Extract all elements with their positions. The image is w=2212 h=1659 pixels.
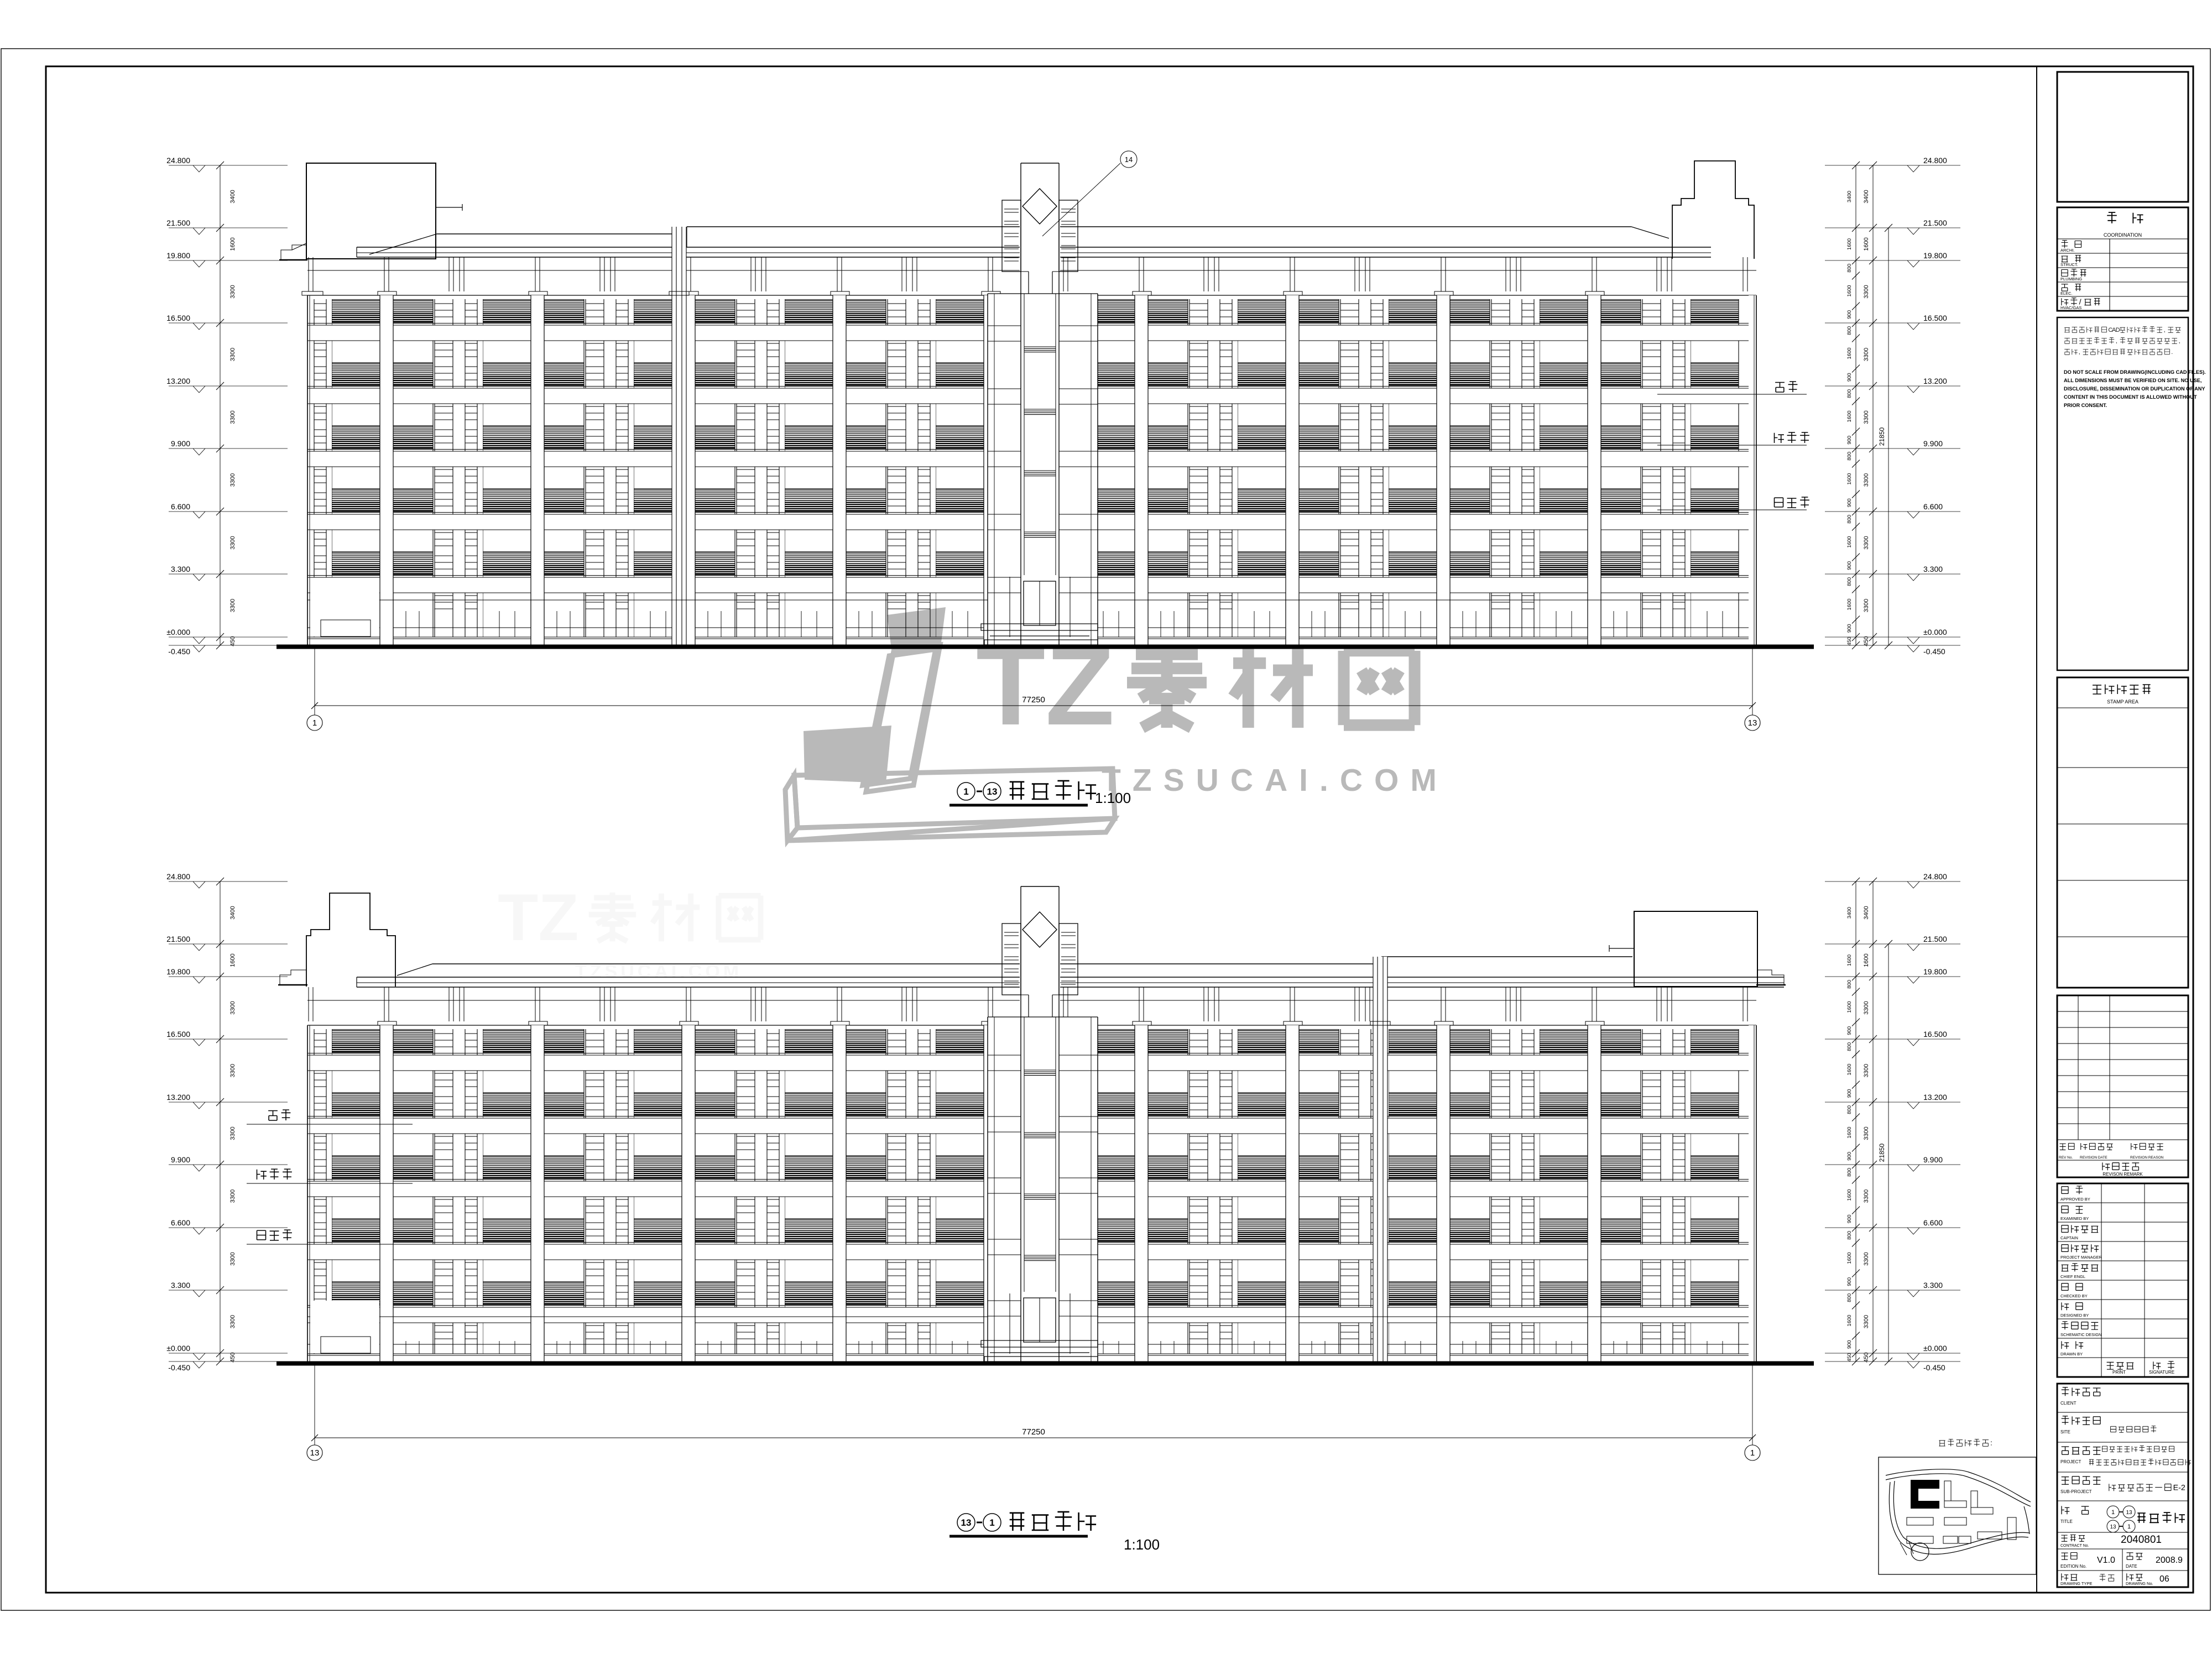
svg-text:24.800: 24.800: [166, 156, 190, 165]
svg-text:1600: 1600: [1846, 347, 1853, 359]
svg-text:±0.000: ±0.000: [1923, 628, 1947, 637]
svg-text:900: 900: [1846, 1214, 1853, 1223]
svg-text:3300: 3300: [229, 410, 236, 424]
svg-text:450: 450: [1846, 1353, 1853, 1362]
svg-text:3400: 3400: [1863, 906, 1870, 919]
svg-text:19.800: 19.800: [1923, 967, 1947, 976]
svg-text:900: 900: [1846, 1152, 1853, 1161]
svg-text:1600: 1600: [1846, 1189, 1853, 1201]
svg-text:1: 1: [989, 1517, 994, 1528]
svg-text:V1.0: V1.0: [2097, 1556, 2115, 1565]
svg-text:ELEC.: ELEC.: [2060, 291, 2073, 296]
svg-text:DRAWING TYPE: DRAWING TYPE: [2060, 1581, 2093, 1586]
svg-text:1600: 1600: [1846, 473, 1853, 484]
svg-text:21850: 21850: [1878, 427, 1886, 446]
svg-text:3300: 3300: [229, 599, 236, 612]
svg-text:PROJECT MANAGER: PROJECT MANAGER: [2060, 1255, 2102, 1260]
svg-text:3300: 3300: [1863, 473, 1870, 487]
svg-text:77250: 77250: [1022, 695, 1045, 705]
svg-text:9.900: 9.900: [1923, 439, 1943, 448]
svg-text:1600: 1600: [1846, 238, 1853, 250]
svg-text:1: 1: [2111, 1509, 2115, 1516]
svg-text:3300: 3300: [229, 1001, 236, 1014]
svg-text:800: 800: [1846, 1231, 1853, 1240]
svg-text:3400: 3400: [229, 906, 236, 919]
svg-text:1600: 1600: [1846, 1063, 1853, 1075]
svg-text:,: ,: [2164, 327, 2166, 333]
svg-text:PLUMBING: PLUMBING: [2060, 276, 2082, 281]
svg-text:16.500: 16.500: [1923, 1030, 1947, 1039]
svg-text:1: 1: [1750, 1448, 1755, 1458]
svg-text:450: 450: [1863, 1352, 1870, 1362]
svg-text:TITLE: TITLE: [2060, 1519, 2073, 1524]
svg-text:19.800: 19.800: [1923, 251, 1947, 260]
svg-text:900: 900: [1846, 1026, 1853, 1035]
svg-text:800: 800: [1846, 452, 1853, 461]
svg-text:1600: 1600: [1846, 536, 1853, 547]
svg-text:3400: 3400: [1846, 191, 1853, 202]
svg-text:DATE: DATE: [2126, 1564, 2137, 1569]
svg-text:APPROVED BY: APPROVED BY: [2060, 1197, 2090, 1202]
svg-text:450: 450: [229, 636, 236, 646]
svg-text:2040801: 2040801: [2121, 1534, 2162, 1546]
svg-text:CLIENT: CLIENT: [2060, 1401, 2077, 1406]
svg-text:6.600: 6.600: [1923, 502, 1943, 511]
svg-text:,: ,: [2179, 338, 2180, 345]
svg-text:21.500: 21.500: [166, 935, 190, 943]
svg-text:-0.450: -0.450: [1923, 1363, 1945, 1372]
svg-text:21.500: 21.500: [166, 218, 190, 227]
svg-text:,: ,: [2116, 338, 2117, 345]
svg-text:CONTRACT No.: CONTRACT No.: [2060, 1544, 2089, 1548]
svg-text:PRINT: PRINT: [2112, 1370, 2126, 1375]
svg-text:PROJECT: PROJECT: [2060, 1459, 2081, 1464]
svg-text:800: 800: [1846, 1168, 1853, 1177]
svg-text:21850: 21850: [1878, 1143, 1886, 1162]
svg-text:±0.000: ±0.000: [166, 628, 190, 637]
svg-text:13: 13: [310, 1448, 320, 1458]
svg-text:D: D: [2116, 327, 2120, 333]
svg-text:16.500: 16.500: [1923, 314, 1947, 322]
svg-text:13: 13: [961, 1517, 972, 1528]
svg-text:1: 1: [963, 786, 968, 797]
svg-text:CHECKED BY: CHECKED BY: [2060, 1293, 2088, 1298]
svg-text:DRAWING No.: DRAWING No.: [2126, 1581, 2153, 1586]
svg-text:TZ: TZ: [498, 880, 579, 954]
svg-text:3300: 3300: [1863, 599, 1870, 612]
svg-text:900: 900: [1846, 1340, 1853, 1349]
svg-text:3.300: 3.300: [1923, 565, 1943, 573]
svg-text:3300: 3300: [1863, 1064, 1870, 1077]
svg-text:450: 450: [1863, 636, 1870, 646]
svg-text:1:100: 1:100: [1124, 1536, 1160, 1553]
svg-text:3300: 3300: [1863, 1001, 1870, 1014]
svg-text:1600: 1600: [1846, 1252, 1853, 1264]
svg-text:3300: 3300: [1863, 348, 1870, 361]
svg-text:DISCLOSURE, DISSEMINATION OR: DISCLOSURE, DISSEMINATION OR DUPLICATION…: [2064, 386, 2205, 392]
svg-text:800: 800: [1846, 326, 1853, 335]
svg-text:24.800: 24.800: [166, 872, 190, 881]
svg-text:TZSUCAI.COM: TZSUCAI.COM: [1102, 763, 1448, 798]
svg-text:800: 800: [1846, 1042, 1853, 1051]
svg-text:SITE: SITE: [2060, 1430, 2070, 1434]
svg-text:800: 800: [1846, 577, 1853, 586]
svg-text:1600: 1600: [1863, 237, 1870, 251]
svg-text:3400: 3400: [1846, 907, 1853, 919]
svg-text:800: 800: [1846, 389, 1853, 398]
svg-text:13: 13: [1748, 718, 1757, 728]
svg-text:1600: 1600: [1863, 953, 1870, 967]
svg-text:CAPTAIN: CAPTAIN: [2060, 1235, 2078, 1240]
svg-text:13: 13: [987, 786, 998, 797]
svg-text:DRAWN BY: DRAWN BY: [2060, 1352, 2083, 1357]
svg-text:±0.000: ±0.000: [166, 1344, 190, 1353]
svg-text:3300: 3300: [1863, 1126, 1870, 1140]
svg-text:800: 800: [1846, 515, 1853, 524]
svg-text:REV No.: REV No.: [2059, 1156, 2073, 1160]
svg-text:SIGNATURE: SIGNATURE: [2149, 1370, 2174, 1375]
svg-text:3300: 3300: [229, 1190, 236, 1203]
svg-text:9.900: 9.900: [1923, 1155, 1943, 1164]
svg-text:,: ,: [2079, 349, 2080, 356]
svg-text:3.300: 3.300: [1923, 1281, 1943, 1290]
svg-text:6.600: 6.600: [171, 502, 190, 511]
svg-text:.: .: [2171, 349, 2173, 356]
svg-text:19.800: 19.800: [166, 967, 190, 976]
svg-text:3300: 3300: [229, 285, 236, 298]
svg-text:3400: 3400: [1863, 190, 1870, 203]
svg-text:3300: 3300: [229, 536, 236, 549]
svg-text:800: 800: [1846, 1105, 1853, 1114]
svg-text:HVAC/GAS: HVAC/GAS: [2060, 305, 2081, 310]
svg-text:24.800: 24.800: [1923, 872, 1947, 881]
svg-text:900: 900: [1846, 1277, 1853, 1286]
svg-text:1: 1: [2127, 1524, 2131, 1530]
svg-text:3300: 3300: [229, 1315, 236, 1328]
svg-text:6.600: 6.600: [1923, 1218, 1943, 1227]
svg-text:900: 900: [1846, 1089, 1853, 1098]
svg-text:3300: 3300: [1863, 536, 1870, 549]
svg-text:-0.450: -0.450: [1923, 647, 1945, 656]
svg-text:900: 900: [1846, 436, 1853, 445]
svg-text:450: 450: [229, 1352, 236, 1362]
svg-text:21.500: 21.500: [1923, 218, 1947, 227]
svg-text:1600: 1600: [1846, 410, 1853, 422]
svg-text:3300: 3300: [1863, 1315, 1870, 1328]
svg-text:900: 900: [1846, 624, 1853, 633]
svg-text:14: 14: [1125, 155, 1133, 164]
svg-text:900: 900: [1846, 373, 1853, 382]
svg-text:1600: 1600: [1846, 954, 1853, 966]
svg-text:800: 800: [1846, 980, 1853, 989]
svg-text:77250: 77250: [1022, 1427, 1045, 1437]
svg-text:CHIEF ENGL: CHIEF ENGL: [2060, 1274, 2085, 1279]
svg-text:3300: 3300: [229, 1064, 236, 1077]
svg-text:3400: 3400: [229, 190, 236, 203]
svg-text:800: 800: [1846, 264, 1853, 273]
svg-text:13.200: 13.200: [166, 377, 190, 385]
svg-text:3300: 3300: [229, 1126, 236, 1140]
svg-text:DO NOT SCALE FROM DRAWING(INCL: DO NOT SCALE FROM DRAWING(INCLUDING CAD …: [2064, 369, 2206, 375]
svg-text:6.600: 6.600: [171, 1218, 190, 1227]
svg-text:ALL DIMENSIONS MUST BE VERIFIE: ALL DIMENSIONS MUST BE VERIFIED ON SITE.…: [2064, 378, 2201, 383]
svg-text:3.300: 3.300: [171, 1281, 190, 1290]
svg-text:900: 900: [1846, 561, 1853, 570]
svg-text:1600: 1600: [1846, 1314, 1853, 1326]
svg-text:13.200: 13.200: [1923, 1093, 1947, 1102]
svg-text:CONTENT IN THIS DOCUMENT IS AL: CONTENT IN THIS DOCUMENT IS ALLOWED WITH…: [2064, 394, 2197, 400]
svg-text:800: 800: [1846, 1293, 1853, 1302]
svg-text:REVISION DATE: REVISION DATE: [2080, 1156, 2107, 1160]
svg-text:3300: 3300: [229, 348, 236, 361]
svg-text::: :: [1990, 1439, 1992, 1447]
svg-text:16.500: 16.500: [166, 314, 190, 322]
svg-text:±0.000: ±0.000: [1923, 1344, 1947, 1353]
svg-text:9.900: 9.900: [171, 439, 190, 448]
svg-text:1600: 1600: [1846, 598, 1853, 610]
svg-text:-0.450: -0.450: [168, 647, 190, 656]
svg-text:2008.9: 2008.9: [2156, 1556, 2183, 1565]
svg-text:REVISON REMARK: REVISON REMARK: [2103, 1172, 2143, 1177]
svg-text:1600: 1600: [229, 953, 236, 967]
svg-text:3300: 3300: [1863, 1190, 1870, 1203]
svg-text:STRUCT.: STRUCT.: [2060, 262, 2078, 267]
svg-text:PRIOR CONSENT.: PRIOR CONSENT.: [2064, 403, 2107, 408]
svg-text:1:100: 1:100: [1095, 790, 1131, 806]
svg-text:1600: 1600: [1846, 1126, 1853, 1138]
svg-text:13.200: 13.200: [1923, 377, 1947, 385]
svg-text:13: 13: [2126, 1510, 2132, 1516]
svg-text:13.200: 13.200: [166, 1093, 190, 1102]
svg-text:900: 900: [1846, 310, 1853, 319]
svg-text:DESIGNED BY: DESIGNED BY: [2060, 1313, 2089, 1318]
svg-text:3300: 3300: [229, 473, 236, 487]
svg-text:1600: 1600: [1846, 1001, 1853, 1013]
svg-text:3300: 3300: [1863, 285, 1870, 298]
svg-text:EXAMINED BY: EXAMINED BY: [2060, 1216, 2089, 1221]
svg-text:450: 450: [1846, 637, 1853, 646]
svg-text:1600: 1600: [1846, 285, 1853, 296]
svg-text:SUB-PROJECT: SUB-PROJECT: [2060, 1489, 2092, 1494]
svg-text:19.800: 19.800: [166, 251, 190, 260]
svg-text:3300: 3300: [1863, 1252, 1870, 1265]
svg-text:13: 13: [2110, 1524, 2116, 1530]
svg-text:ARCHI.: ARCHI.: [2060, 248, 2074, 253]
svg-text:21.500: 21.500: [1923, 935, 1947, 943]
svg-text:3300: 3300: [229, 1252, 236, 1265]
svg-text:24.800: 24.800: [1923, 156, 1947, 165]
svg-text:REVISION REASON: REVISION REASON: [2130, 1156, 2164, 1160]
svg-text:06: 06: [2159, 1574, 2169, 1584]
svg-text:1600: 1600: [229, 237, 236, 251]
svg-text:STAMP AREA: STAMP AREA: [2107, 699, 2138, 705]
svg-text:1: 1: [312, 718, 317, 728]
svg-text:E-2: E-2: [2173, 1483, 2185, 1492]
svg-text:3.300: 3.300: [171, 565, 190, 573]
svg-text:9.900: 9.900: [171, 1155, 190, 1164]
svg-text:-0.450: -0.450: [168, 1363, 190, 1372]
svg-text:SCHEMATIC DESIGN: SCHEMATIC DESIGN: [2060, 1332, 2101, 1337]
svg-text:COORDINATION: COORDINATION: [2104, 232, 2142, 238]
svg-text:EDITION No.: EDITION No.: [2060, 1564, 2086, 1569]
svg-text:900: 900: [1846, 498, 1853, 507]
svg-text:16.500: 16.500: [166, 1030, 190, 1039]
svg-text:3300: 3300: [1863, 410, 1870, 424]
